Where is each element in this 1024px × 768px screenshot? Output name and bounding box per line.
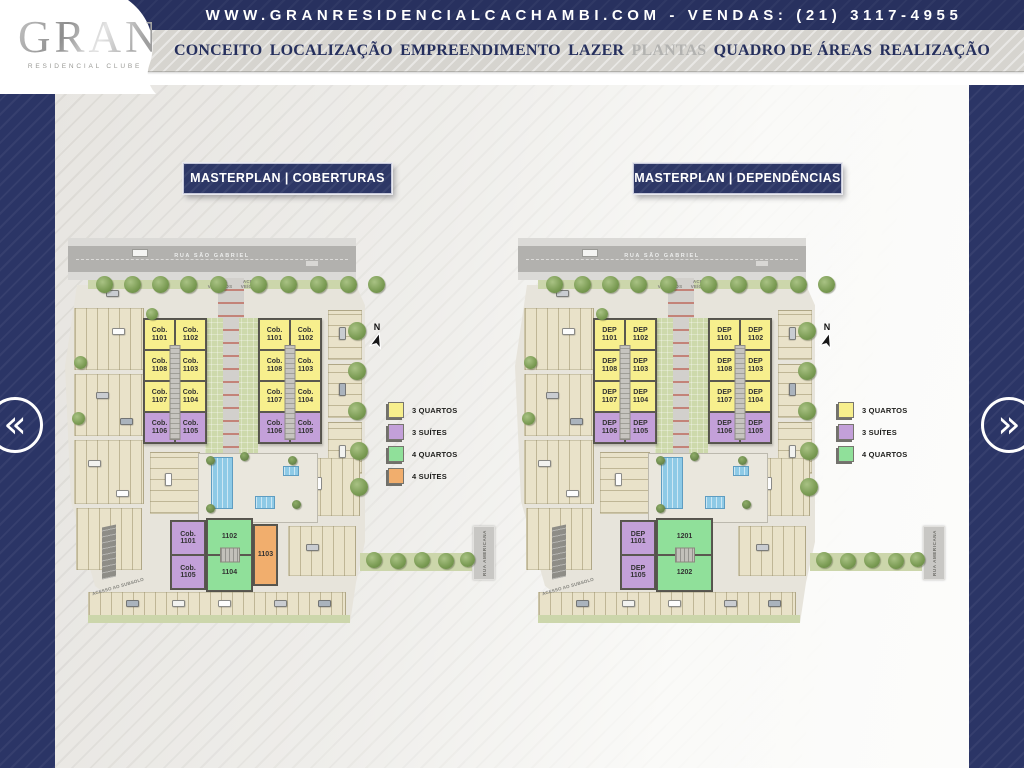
tower-core-icon [170, 345, 181, 440]
bottom-left-column: Cob.1101Cob.1105 [170, 520, 206, 590]
palm-tree-icon [288, 456, 297, 465]
tree-icon [630, 276, 647, 293]
spa-pool-icon [705, 496, 725, 509]
kids-pool-icon [733, 466, 749, 476]
tree-icon [524, 356, 537, 369]
legend-swatch-yellow [388, 402, 404, 418]
tower-core-icon [285, 345, 296, 440]
tree-icon [348, 402, 366, 420]
car-icon [172, 600, 185, 607]
unit-cob-1105: Cob.1105 [171, 555, 205, 589]
car-icon [789, 327, 796, 340]
pool-deck [198, 453, 318, 523]
plan-title-dependencias: MASTERPLAN | DEPENDÊNCIAS [633, 163, 842, 194]
tree-icon [460, 552, 475, 567]
bottom-core-icon [220, 548, 240, 563]
car-icon [622, 600, 635, 607]
car-icon [789, 445, 796, 458]
car-icon [120, 418, 133, 425]
unit-cob-1101: Cob.1101 [171, 521, 205, 555]
kids-pool-icon [283, 466, 299, 476]
tree-icon [152, 276, 169, 293]
unit-dep-1101: DEP1101 [621, 521, 655, 555]
tree-icon [602, 276, 619, 293]
tree-icon [790, 276, 807, 293]
tree-icon [840, 553, 856, 569]
tree-icon [800, 442, 818, 460]
car-icon [756, 544, 769, 551]
legend: 3 QUARTOS3 SUÍTES4 QUARTOS [838, 402, 907, 462]
central-path [673, 318, 689, 455]
nav-item-quadro-de-areas[interactable]: QUADRO DE ÁREAS [714, 42, 873, 60]
bottom-building: Cob.1101Cob.1105110211041103 [170, 518, 282, 592]
plan-canvas-dependencias: RUA SÃO GABRIELSAÍDAVEÍCULOSACESSOVEÍCUL… [510, 160, 950, 640]
nav-item-lazer[interactable]: LAZER [568, 42, 624, 60]
legend-item-4-quartos: 4 QUARTOS [388, 446, 457, 462]
north-label: N [364, 322, 390, 332]
parking-row [524, 374, 594, 436]
tree-icon [910, 552, 925, 567]
tree-icon [596, 308, 608, 320]
car-icon [165, 473, 172, 486]
legend-label: 4 SUÍTES [412, 472, 447, 481]
nav-item-localizacao[interactable]: LOCALIZAÇÃO [270, 42, 393, 60]
bottom-core-icon [675, 548, 695, 563]
tree-icon [546, 276, 563, 293]
tree-icon [350, 442, 368, 460]
legend-label: 3 SUÍTES [412, 428, 447, 437]
car-icon [768, 600, 781, 607]
street-centerline-icon [526, 259, 798, 260]
legend-item-4-suites: 4 SUÍTES [388, 468, 457, 484]
tree-icon [366, 552, 382, 568]
car-icon [274, 600, 287, 607]
street-centerline-icon [76, 259, 348, 260]
bottom-center-column: 11021104 [206, 518, 253, 592]
nav-item-plantas[interactable]: PLANTAS [631, 42, 706, 60]
tree-icon [280, 276, 297, 293]
nav-item-empreendimento[interactable]: EMPREENDIMENTO [400, 42, 561, 60]
pool-deck [648, 453, 768, 523]
street-top-sidewalk [518, 238, 806, 246]
lap-pool-icon [661, 457, 683, 509]
tree-icon [818, 276, 835, 293]
legend-label: 4 QUARTOS [862, 450, 907, 459]
car-icon [615, 473, 622, 486]
tree-icon [390, 553, 406, 569]
bottom-right-column: 1103 [253, 524, 278, 586]
car-icon [668, 600, 681, 607]
hedge-strip-bottom [88, 615, 350, 623]
tree-icon [146, 308, 158, 320]
legend-label: 4 QUARTOS [412, 450, 457, 459]
north-indicator: N [364, 322, 390, 355]
car-icon [306, 544, 319, 551]
hedge-strip-bottom [538, 615, 800, 623]
palm-tree-icon [206, 504, 215, 513]
legend-swatch-green [388, 446, 404, 462]
tree-icon [210, 276, 227, 293]
unit-1103: 1103 [254, 525, 277, 585]
logo[interactable]: GRAN RESIDENCIAL CLUBE [18, 12, 152, 70]
palm-tree-icon [690, 452, 699, 461]
tower-building-1: DEP1101DEP1102DEP1108DEP1103DEP1107DEP11… [593, 318, 657, 444]
tree-icon [340, 276, 357, 293]
street-sign-americana: RUA AMERICANA [473, 526, 495, 580]
masterplan-dependencias-panel: MASTERPLAN | DEPENDÊNCIAS RUA SÃO GABRIE… [510, 160, 950, 640]
street-top-road: RUA SÃO GABRIEL [68, 246, 356, 272]
legend-label: 3 QUARTOS [862, 406, 907, 415]
tree-icon [798, 402, 816, 420]
garage-ramp [102, 525, 116, 580]
page: WWW.GRANRESIDENCIALCACHAMBI.COM - VENDAS… [0, 0, 1024, 768]
car-icon [126, 600, 139, 607]
parking-row [288, 526, 356, 576]
street-top-sidewalk [68, 238, 356, 246]
tree-icon [72, 412, 85, 425]
car-icon [112, 328, 125, 335]
spa-pool-icon [255, 496, 275, 509]
car-icon [318, 600, 331, 607]
legend-item-3-suites: 3 SUÍTES [838, 424, 907, 440]
car-icon [566, 490, 579, 497]
street-top-road: RUA SÃO GABRIEL [518, 246, 806, 272]
palm-tree-icon [656, 504, 665, 513]
north-arrow-icon [366, 330, 388, 352]
bottom-building: DEP1101DEP110512011202 [620, 518, 732, 592]
street-sign-americana: RUA AMERICANA [923, 526, 945, 580]
car-icon [576, 600, 589, 607]
car-icon [570, 418, 583, 425]
parking-row [600, 452, 650, 514]
tree-icon [310, 276, 327, 293]
parking-row [738, 526, 806, 576]
logo-title: GRAN [18, 12, 152, 62]
palm-tree-icon [240, 452, 249, 461]
parking-row [74, 374, 144, 436]
tree-icon [798, 362, 816, 380]
tower-core-icon [735, 345, 746, 440]
tree-icon [348, 362, 366, 380]
tree-icon [888, 553, 904, 569]
tree-icon [250, 276, 267, 293]
legend-swatch-yellow [838, 402, 854, 418]
street-sign-label: RUA AMERICANA [932, 530, 937, 576]
legend-swatch-purple [838, 424, 854, 440]
car-icon [562, 328, 575, 335]
parking-row [74, 440, 144, 504]
tree-icon [438, 553, 454, 569]
bottom-left-column: DEP1101DEP1105 [620, 520, 656, 590]
bus-stop-icon [132, 249, 148, 257]
tower-building-2: DEP1101DEP1102DEP1108DEP1103DEP1107DEP11… [708, 318, 772, 444]
car-icon [339, 383, 346, 396]
north-arrow-icon [816, 330, 838, 352]
road-marking-icon [306, 261, 318, 266]
palm-tree-icon [656, 456, 665, 465]
car-icon [724, 600, 737, 607]
car-icon [88, 460, 101, 467]
tree-icon [730, 276, 747, 293]
car-icon [339, 445, 346, 458]
parking-row [150, 452, 200, 514]
masterplan-coberturas-panel: MASTERPLAN | COBERTURAS RUA SÃO GABRIELS… [60, 160, 500, 640]
car-icon [218, 600, 231, 607]
tree-icon [800, 478, 818, 496]
tree-icon [522, 412, 535, 425]
street-sign-label: RUA AMERICANA [482, 530, 487, 576]
logo-subtitle: RESIDENCIAL CLUBE [18, 63, 152, 70]
tree-icon [574, 276, 591, 293]
unit-dep-1105: DEP1105 [621, 555, 655, 589]
tree-icon [816, 552, 832, 568]
bottom-center-column: 12011202 [656, 518, 713, 592]
palm-tree-icon [292, 500, 301, 509]
tree-icon [74, 356, 87, 369]
palm-tree-icon [206, 456, 215, 465]
parking-row [524, 440, 594, 504]
car-icon [546, 392, 559, 399]
tree-icon [350, 478, 368, 496]
bus-stop-icon [582, 249, 598, 257]
legend: 3 QUARTOS3 SUÍTES4 QUARTOS4 SUÍTES [388, 402, 457, 484]
legend-swatch-purple [388, 424, 404, 440]
legend-swatch-orange [388, 468, 404, 484]
tree-icon [368, 276, 385, 293]
legend-item-3-suites: 3 SUÍTES [388, 424, 457, 440]
legend-label: 3 SUÍTES [862, 428, 897, 437]
garage-ramp [552, 525, 566, 580]
plan-title-coberturas: MASTERPLAN | COBERTURAS [183, 163, 392, 194]
north-label: N [814, 322, 840, 332]
legend-label: 3 QUARTOS [412, 406, 457, 415]
tree-icon [180, 276, 197, 293]
tower-building-2: Cob.1101Cob.1102Cob.1108Cob.1103Cob.1107… [258, 318, 322, 444]
palm-tree-icon [738, 456, 747, 465]
car-icon [538, 460, 551, 467]
tree-icon [414, 552, 430, 568]
north-indicator: N [814, 322, 840, 355]
nav-item-realizacao[interactable]: REALIZAÇÃO [880, 42, 990, 60]
central-path [223, 318, 239, 455]
legend-item-3-quartos: 3 QUARTOS [388, 402, 457, 418]
tree-icon [124, 276, 141, 293]
tree-icon [760, 276, 777, 293]
tower-building-1: Cob.1101Cob.1102Cob.1108Cob.1103Cob.1107… [143, 318, 207, 444]
legend-item-3-quartos: 3 QUARTOS [838, 402, 907, 418]
tree-icon [660, 276, 677, 293]
car-icon [789, 383, 796, 396]
lap-pool-icon [211, 457, 233, 509]
car-icon [339, 327, 346, 340]
tree-icon [864, 552, 880, 568]
palm-tree-icon [742, 500, 751, 509]
legend-item-4-quartos: 4 QUARTOS [838, 446, 907, 462]
car-icon [96, 392, 109, 399]
topbar-text: WWW.GRANRESIDENCIALCACHAMBI.COM - VENDAS… [150, 0, 1018, 30]
plan-canvas-coberturas: RUA SÃO GABRIELSAÍDAVEÍCULOSACESSOVEÍCUL… [60, 160, 500, 640]
tree-icon [700, 276, 717, 293]
legend-swatch-green [838, 446, 854, 462]
nav-item-conceito[interactable]: CONCEITO [174, 42, 262, 60]
road-marking-icon [756, 261, 768, 266]
car-icon [116, 490, 129, 497]
tree-icon [96, 276, 113, 293]
tower-core-icon [620, 345, 631, 440]
